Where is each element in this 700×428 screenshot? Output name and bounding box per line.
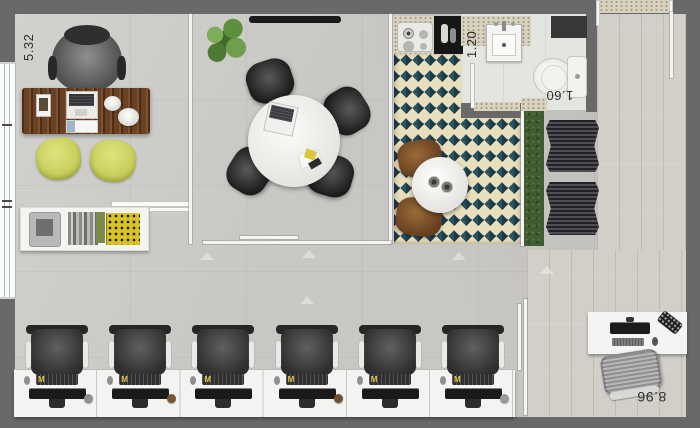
exterior-wall-bottom [0, 417, 700, 428]
printer-screen [36, 219, 53, 236]
chair-armrest [359, 341, 364, 368]
hedge-planter [524, 110, 544, 246]
meeting-room-sliding-door [240, 236, 298, 239]
chair-armrest [249, 341, 254, 368]
monitor-stand [215, 399, 231, 408]
wall-tv [249, 16, 341, 23]
laptop [66, 91, 98, 119]
laptop-keyboard [269, 105, 294, 122]
burner [403, 28, 414, 39]
potted-plant [200, 18, 250, 66]
dimension-label-sink: 1.20 [464, 31, 479, 58]
office-chair [26, 325, 88, 375]
keyboard-logo: M [454, 375, 461, 384]
chair-seat [364, 329, 416, 375]
keyboard-logo: M [288, 375, 295, 384]
meeting-room-glass-wall-right [389, 14, 392, 244]
monitor [112, 388, 169, 399]
keyboard: M [452, 374, 494, 385]
glass-partition [518, 304, 521, 370]
office-chair [276, 325, 338, 375]
chair-headrest [64, 25, 110, 45]
chair-armrest [192, 341, 197, 368]
desk-phone [190, 376, 196, 385]
desk-accessory [84, 394, 93, 403]
window-pane-line [9, 64, 10, 297]
meeting-room-glass-wall-bottom [203, 241, 391, 244]
kitchen-cabinet [434, 16, 463, 54]
keyboard-logo: M [204, 375, 211, 384]
lounge-chair [546, 120, 599, 172]
office-chair [359, 325, 421, 375]
office-floor-plan: { "plan": { "type": "office-floor-plan",… [0, 0, 700, 428]
sink-drain [502, 43, 506, 47]
floor-chevron-mark [200, 252, 214, 260]
chair-armrest [109, 341, 114, 368]
chair-armrest [333, 341, 338, 368]
entrance-threshold [599, 0, 671, 13]
faucet-handle [511, 22, 515, 26]
window-mullion [2, 200, 12, 202]
chair-seat [31, 329, 83, 375]
chair-armrest [499, 341, 504, 368]
keyboard: M [202, 374, 244, 385]
meeting-room-glass-wall-left [189, 14, 192, 244]
desk-phone [357, 376, 363, 385]
chair-seat [114, 329, 166, 375]
sliding-glass-panel [112, 202, 190, 206]
door-jamb [596, 0, 600, 26]
chair-armrest [26, 341, 31, 368]
monitor-stand [49, 399, 65, 408]
workstation: M [349, 318, 432, 418]
workstation: M [266, 318, 349, 418]
office-chair [442, 325, 504, 375]
exterior-wall-left [0, 294, 15, 428]
faucet [502, 21, 506, 31]
flush-button [575, 74, 580, 79]
dimension-label-left-wall: 5.32 [21, 34, 36, 61]
desk-photo-frame [36, 94, 51, 117]
floor-chevron-mark [300, 296, 314, 304]
workstation: M [16, 318, 99, 418]
documents [66, 120, 98, 133]
printer [29, 212, 61, 247]
keyboard-logo: M [121, 375, 128, 384]
bottle [441, 24, 448, 43]
workstation: M [99, 318, 182, 418]
dimension-label-bottom: 8.96 [637, 389, 666, 405]
meeting-laptop [263, 101, 299, 137]
office-chair [109, 325, 171, 375]
cooktop [397, 22, 433, 52]
desk-accessory [334, 394, 343, 403]
chair-armrest [83, 341, 88, 368]
monitor [279, 388, 336, 399]
monitor [445, 388, 502, 399]
chair-seat [281, 329, 333, 375]
manager-monitor [610, 322, 650, 334]
open-door-leaf [670, 12, 673, 78]
desk-phone [440, 376, 446, 385]
office-chair [192, 325, 254, 375]
desk-phone [24, 376, 30, 385]
desk-accessory [167, 394, 176, 403]
monitor [29, 388, 86, 399]
monitor-stand [132, 399, 148, 408]
chair-seat [197, 329, 249, 375]
faucet-handle [494, 22, 498, 26]
bathroom-corridor-wall [586, 14, 597, 112]
lounge-chair [546, 182, 599, 235]
green-binder [96, 212, 105, 243]
granite-strip [521, 98, 547, 111]
saucer [104, 96, 121, 111]
bottle [450, 28, 456, 43]
book-stack [68, 212, 98, 245]
floor-chevron-mark [540, 266, 554, 274]
webcam [626, 317, 634, 322]
monitor [195, 388, 252, 399]
dimension-label-wc: 1.60 [546, 88, 573, 103]
laptop-keyboard [69, 94, 94, 106]
exterior-wall-right [686, 0, 700, 428]
chair-armrest [276, 341, 281, 368]
desk-accessory [500, 394, 509, 403]
executive-chair [52, 28, 122, 92]
monitor [362, 388, 419, 399]
photo [39, 98, 48, 111]
workstation: M [432, 318, 515, 418]
monitor-stand [299, 399, 315, 408]
glass-partition [524, 299, 527, 415]
chair-armrest [416, 341, 421, 368]
floor-chevron-mark [452, 252, 466, 260]
desk-phone [107, 376, 113, 385]
chair-armrest [48, 56, 57, 80]
window-mullion [2, 124, 12, 126]
keyboard: M [36, 374, 78, 385]
bathroom-threshold [474, 102, 520, 111]
exterior-wall-top [0, 0, 700, 14]
yellow-storage-boxes [106, 213, 140, 245]
chair-seat [447, 329, 499, 375]
coffee-cup [118, 108, 139, 126]
monitor-stand [382, 399, 398, 408]
window-pane-line [4, 64, 5, 297]
window-mullion [2, 206, 12, 208]
manager-keyboard [612, 338, 644, 346]
keyboard: M [119, 374, 161, 385]
chair-armrest [442, 341, 447, 368]
keyboard: M [286, 374, 328, 385]
desk-phone [274, 376, 280, 385]
cafe-table [412, 157, 468, 213]
exterior-wall-left [0, 0, 15, 64]
bathroom-niche [551, 16, 587, 38]
bathroom-sink [486, 24, 522, 62]
monitor-stand [465, 399, 481, 408]
window-left [0, 62, 16, 299]
mouse [652, 337, 658, 346]
chair-armrest [117, 56, 126, 80]
laptop-trackpad [75, 109, 87, 116]
plate [441, 181, 453, 193]
chair-armrest [166, 341, 171, 368]
keyboard-logo: M [371, 375, 378, 384]
sliding-glass-panel [150, 208, 190, 211]
workstation: M [182, 318, 265, 418]
plate [428, 176, 440, 188]
keyboard: M [369, 374, 411, 385]
keyboard-logo: M [38, 375, 45, 384]
floor-chevron-mark [302, 250, 316, 258]
